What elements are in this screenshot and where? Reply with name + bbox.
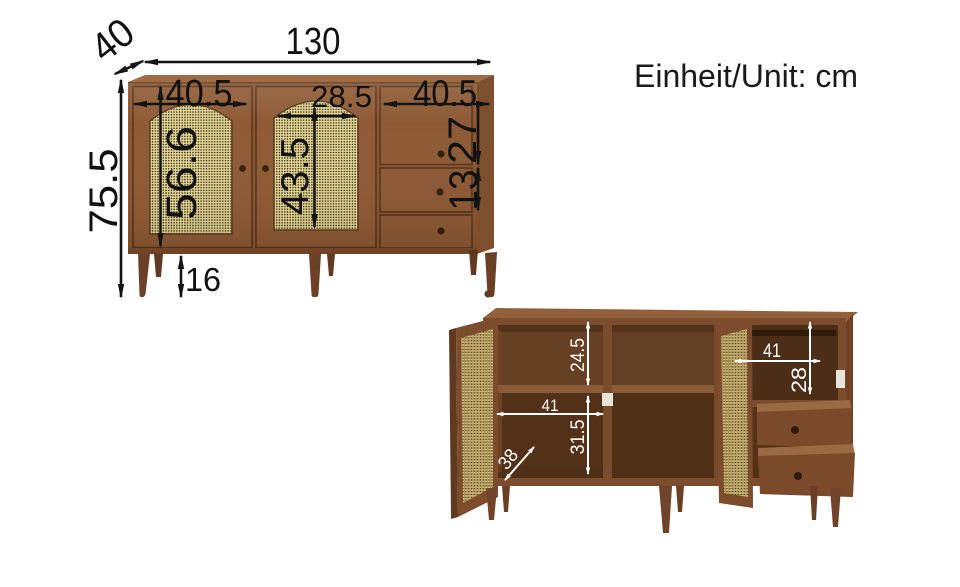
svg-text:41: 41	[763, 341, 781, 362]
svg-text:24.5: 24.5	[568, 338, 589, 372]
svg-text:Einheit/Unit: cm: Einheit/Unit: cm	[634, 58, 858, 94]
svg-text:56.6: 56.6	[158, 126, 206, 220]
svg-text:16: 16	[185, 261, 221, 298]
svg-text:28: 28	[788, 367, 811, 393]
svg-text:41: 41	[542, 396, 559, 415]
svg-text:75.5: 75.5	[82, 149, 126, 234]
svg-text:40.5: 40.5	[413, 73, 477, 114]
svg-text:27: 27	[441, 116, 485, 164]
svg-text:40: 40	[83, 10, 143, 71]
svg-text:40.5: 40.5	[166, 73, 233, 115]
svg-text:28.5: 28.5	[311, 79, 372, 114]
svg-text:13: 13	[442, 170, 486, 211]
svg-text:130: 130	[286, 21, 341, 63]
svg-text:43.5: 43.5	[274, 137, 317, 215]
svg-text:31.5: 31.5	[568, 420, 589, 455]
